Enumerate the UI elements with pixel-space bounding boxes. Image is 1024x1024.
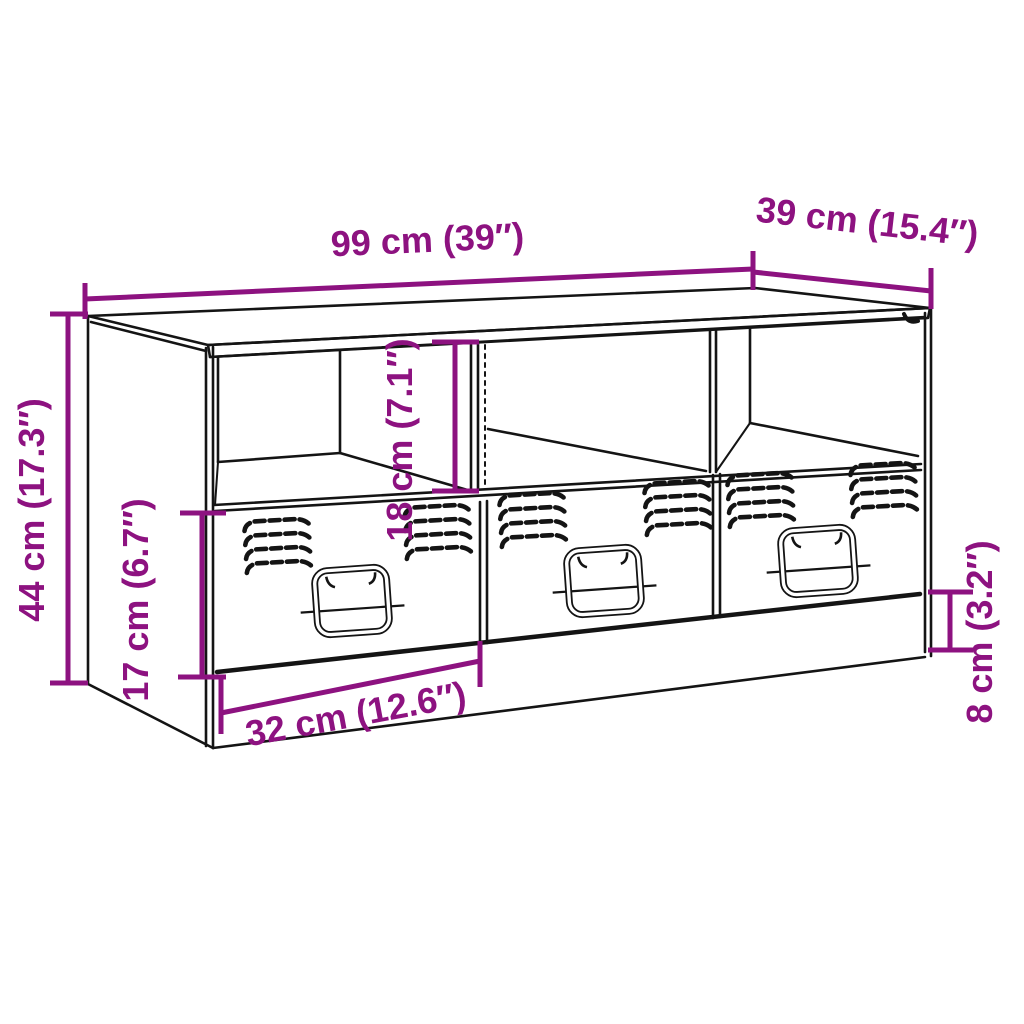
- shelf-front-edge: [214, 464, 921, 511]
- dimension-base-height-label: 8 cm (3.2″): [959, 540, 1000, 723]
- diagram-page: 99 cm (39″) 39 cm (15.4″) 44 cm (17.3″) …: [0, 0, 1024, 1024]
- dimension-compartment-height: 18 cm (7.1″): [379, 338, 479, 541]
- dimension-width-label: 99 cm (39″): [330, 215, 525, 265]
- dimension-depth-label: 39 cm (15.4″): [754, 189, 981, 255]
- vent-group: [499, 492, 568, 547]
- dimension-height-label: 44 cm (17.3″): [11, 398, 52, 621]
- compartment-2: [488, 329, 716, 472]
- compartment-1: [215, 342, 485, 505]
- drawer-handle: [764, 525, 872, 596]
- dimension-drawer-height-label: 17 cm (6.7″): [115, 498, 156, 701]
- top-underside-line: [210, 317, 925, 357]
- drawer-vents: [244, 462, 919, 573]
- furniture-dimension-diagram: 99 cm (39″) 39 cm (15.4″) 44 cm (17.3″) …: [0, 0, 1024, 1024]
- vent-group: [244, 518, 313, 573]
- dimension-compartment-height-label: 18 cm (7.1″): [379, 338, 420, 541]
- vent-group: [644, 480, 713, 535]
- compartment-3: [716, 328, 918, 472]
- dimension-base-height: 8 cm (3.2″): [928, 540, 1000, 723]
- drawer-handle: [298, 565, 406, 636]
- dimension-height: 44 cm (17.3″): [11, 314, 88, 683]
- dimension-drawer-height: 17 cm (6.7″): [115, 498, 226, 701]
- drawer-handle: [550, 545, 658, 616]
